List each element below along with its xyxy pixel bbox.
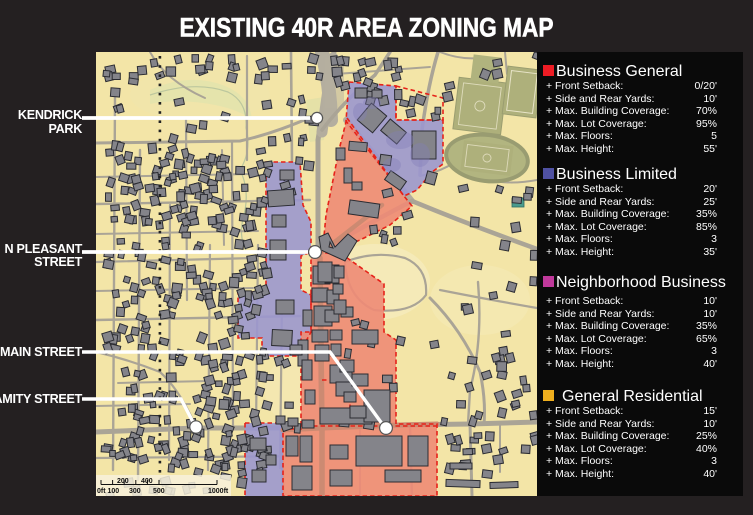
svg-text:500: 500 [153, 488, 165, 495]
svg-text:200: 200 [117, 478, 129, 485]
svg-text:1000ft: 1000ft [208, 488, 229, 495]
svg-text:300: 300 [129, 488, 141, 495]
svg-text:400: 400 [141, 478, 153, 485]
svg-text:0ft 100: 0ft 100 [97, 488, 119, 495]
svg-text:EXISTING 40R AREA ZONING MAP: EXISTING 40R AREA ZONING MAP [180, 13, 554, 43]
